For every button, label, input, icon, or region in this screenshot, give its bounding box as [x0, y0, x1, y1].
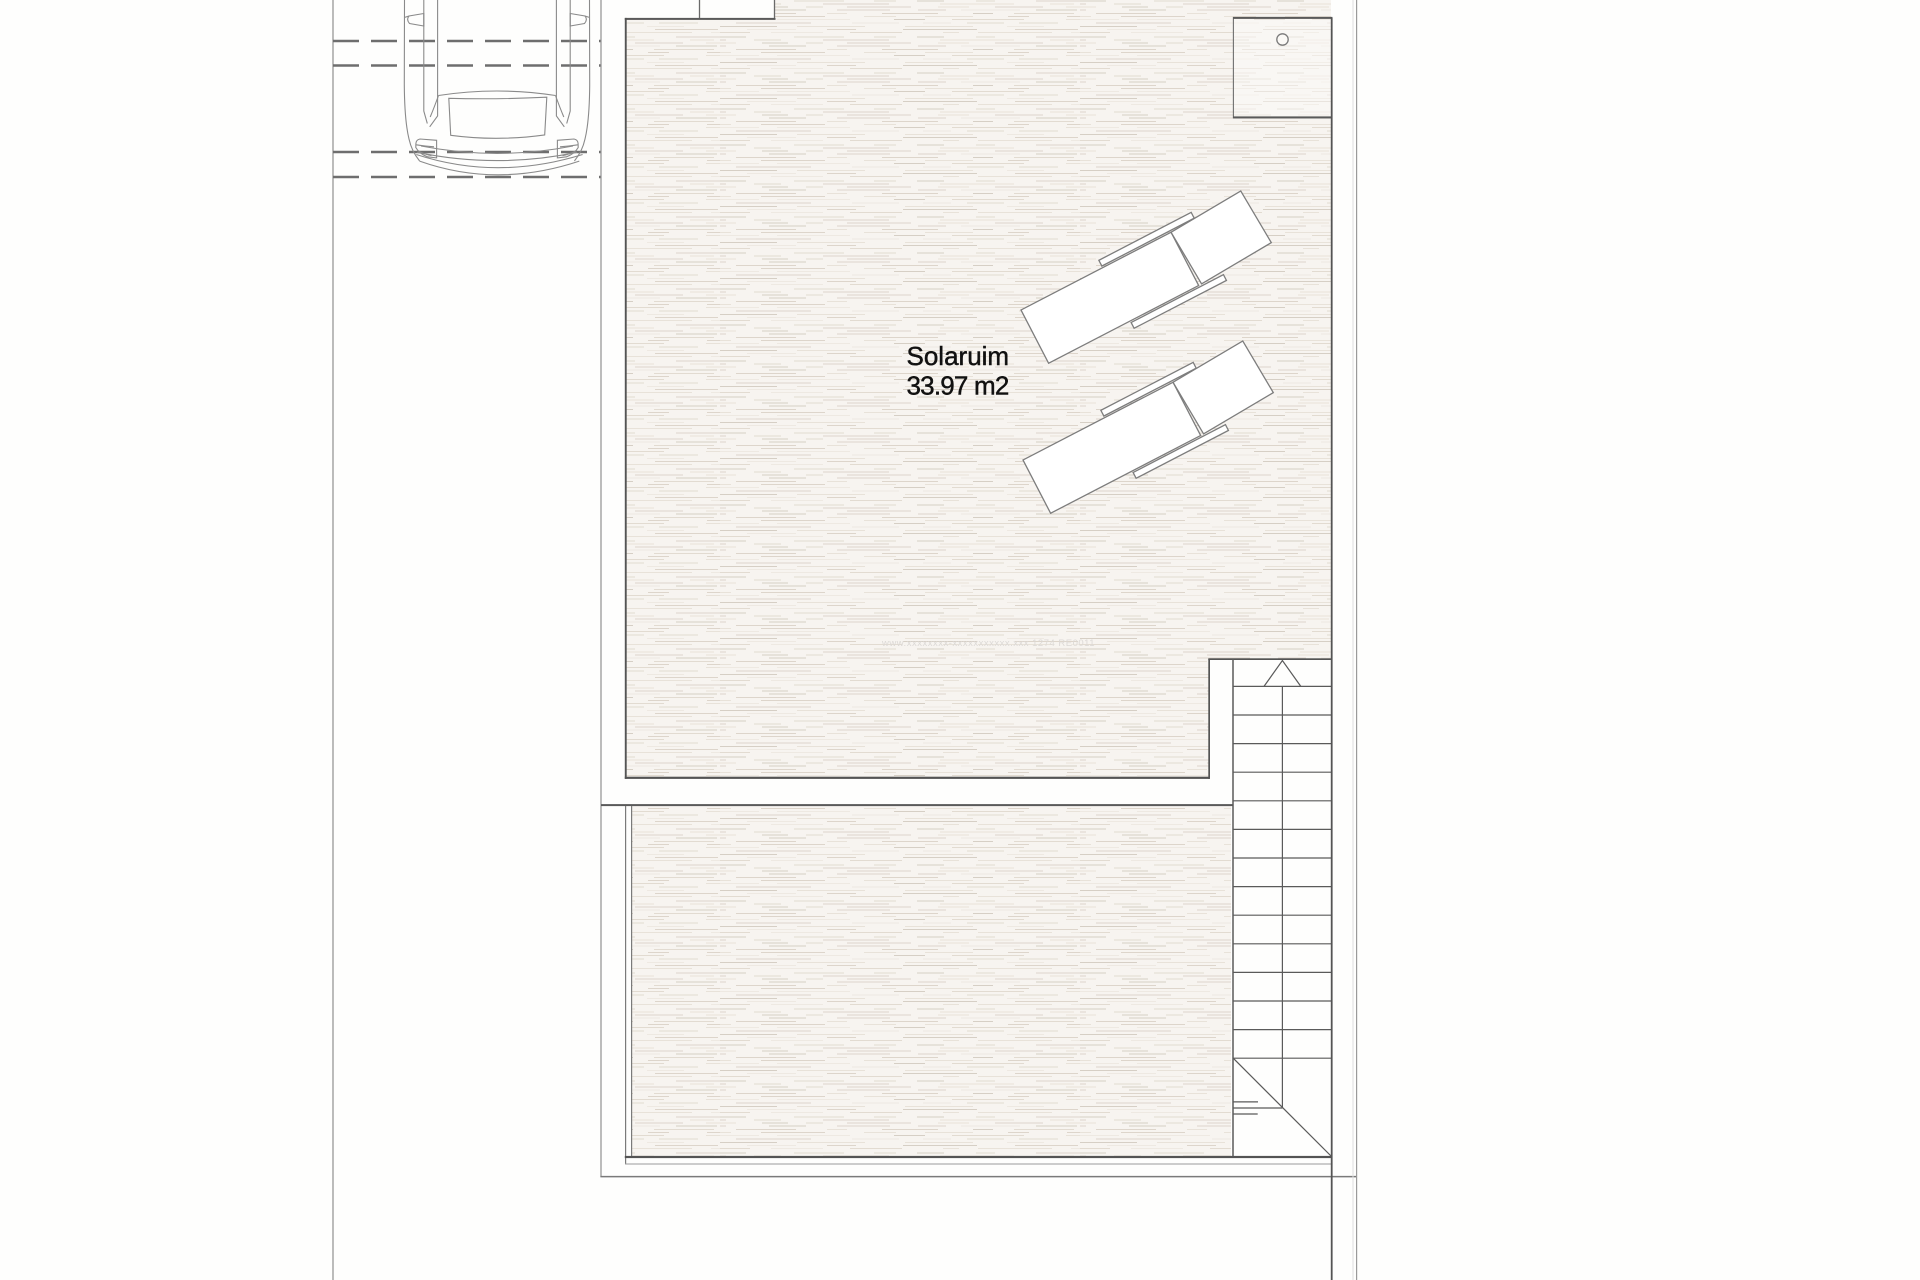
- svg-text:33.97 m2: 33.97 m2: [907, 371, 1009, 401]
- svg-text:www.xxxxxxxx-xxxxxxxxxxx.xxx 1: www.xxxxxxxx-xxxxxxxxxxx.xxx 1274 RE0011: [881, 638, 1095, 649]
- svg-text:Solaruim: Solaruim: [907, 341, 1010, 371]
